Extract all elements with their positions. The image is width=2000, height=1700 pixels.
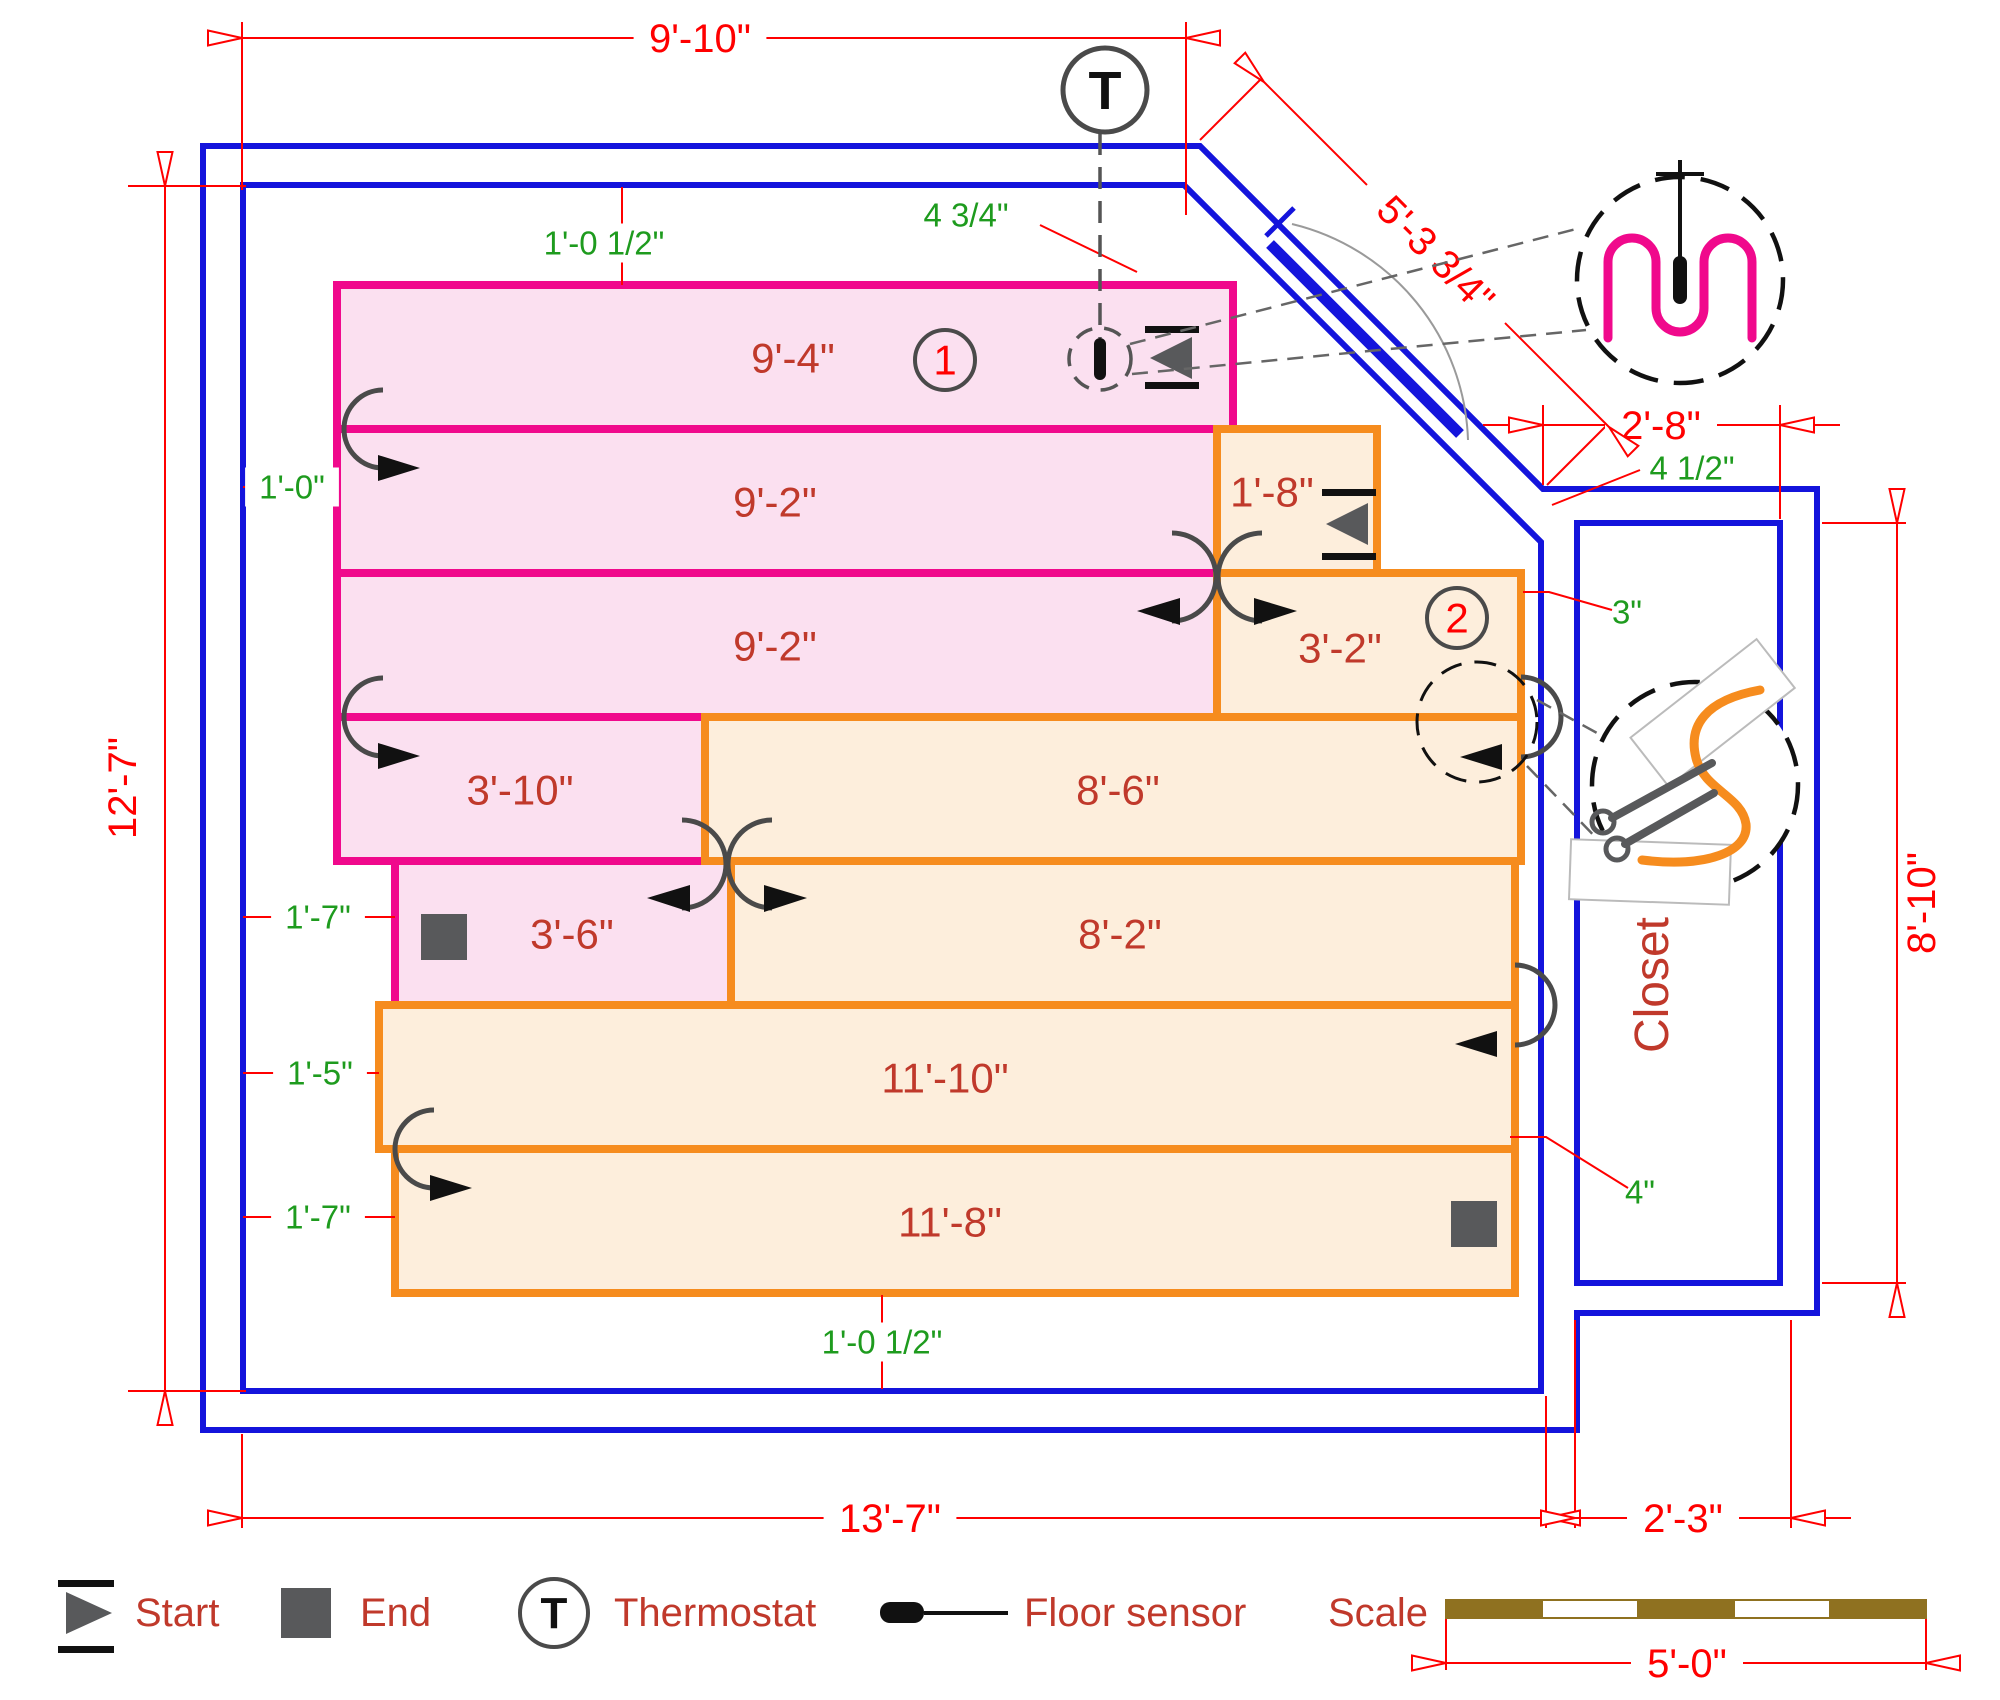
- scale-label: Scale: [1328, 1591, 1428, 1635]
- scale-bar-segment: [1830, 1600, 1926, 1618]
- circuit-badge-number: 2: [1445, 595, 1468, 642]
- plan-canvas: 9'-4"9'-2"9'-2"3'-10"3'-6"1'-8"3'-2"8'-6…: [0, 0, 2000, 1700]
- dimension-arrowhead: [1890, 489, 1905, 523]
- dimension-arrowhead: [1890, 1283, 1905, 1317]
- dimension-arrowhead: [1412, 1656, 1446, 1671]
- dimension-arrowhead: [1926, 1656, 1960, 1671]
- annotation-label: 3": [1612, 594, 1642, 631]
- dimension-label: 13'-7": [839, 1497, 941, 1541]
- scale-bar-segment: [1446, 1600, 1542, 1618]
- mat-length-label: 3'-10": [467, 767, 574, 814]
- dimension-arrowhead: [1791, 1511, 1825, 1526]
- annotation-label: 1'-7": [285, 1199, 351, 1236]
- legend-label-start: Start: [135, 1591, 219, 1635]
- start-icon: [58, 1580, 114, 1653]
- annotation-label: 1'-0": [259, 469, 325, 506]
- annotation-leader: [1523, 592, 1612, 610]
- annotation-label: 1'-0 1/2": [544, 225, 665, 262]
- extension-line: [1547, 425, 1607, 485]
- floor-sensor-probe: [1094, 338, 1106, 380]
- heating-mats: 9'-4"9'-2"9'-2"3'-10"3'-6"1'-8"3'-2"8'-6…: [337, 285, 1521, 1293]
- annotation-label: 4": [1625, 1174, 1655, 1211]
- dimension-label: 8'-10": [1900, 852, 1944, 954]
- scale-bar-segment: [1734, 1600, 1830, 1618]
- mat-piece: [1569, 839, 1731, 905]
- end-marker-circuit2: [1451, 1201, 1497, 1247]
- start-marker-bar: [1322, 553, 1376, 560]
- floor-heating-plan: 9'-4"9'-2"9'-2"3'-10"3'-6"1'-8"3'-2"8'-6…: [0, 0, 2000, 1700]
- svg-text:T: T: [541, 1589, 568, 1638]
- end-marker-circuit1: [421, 914, 467, 960]
- scale-bar-segment: [1542, 1600, 1638, 1618]
- dimension-arrowhead: [1509, 418, 1543, 433]
- dimension-label: 9'-10": [649, 17, 751, 61]
- legend-label-sensor: Floor sensor: [1024, 1591, 1246, 1635]
- dimension-arrowhead: [1235, 53, 1264, 82]
- mat-length-label: 8'-6": [1076, 767, 1160, 814]
- thermostat-symbol-letter: T: [1089, 61, 1122, 121]
- legend-label-thermostat: Thermostat: [614, 1591, 816, 1635]
- dimension-label: 12'-7": [101, 737, 145, 839]
- annotation-label: 4 1/2": [1649, 450, 1734, 487]
- start-marker-bar: [1322, 489, 1376, 496]
- end-icon: [281, 1588, 331, 1638]
- callout-leader: [1537, 700, 1597, 733]
- mat-length-label: 1'-8": [1230, 469, 1314, 516]
- dimension-arrowhead: [1780, 418, 1814, 433]
- scale-bar: [1446, 1600, 1926, 1618]
- floor-sensor-icon: [880, 1602, 1008, 1623]
- dimension-label: 5'-3 3/4": [1368, 187, 1503, 322]
- mat-length-label: 11'-10": [881, 1055, 1008, 1102]
- start-marker-bar: [1145, 382, 1199, 389]
- annotation-leader: [1040, 225, 1137, 272]
- annotation-label: 1'-5": [287, 1055, 353, 1092]
- mat-length-label: 3'-2": [1298, 625, 1382, 672]
- annotation-label: 1'-7": [285, 899, 351, 936]
- mat-length-label: 9'-2": [733, 623, 817, 670]
- scale-bar-segment: [1638, 1600, 1734, 1618]
- dimension-arrowhead: [158, 152, 173, 186]
- sensor-detail-probe: [1673, 256, 1687, 304]
- mat-length-label: 11'-8": [898, 1199, 1002, 1246]
- dimension-arrowhead: [208, 1511, 242, 1526]
- dimension-label: 2'-3": [1643, 1497, 1723, 1541]
- legend-label-end: End: [360, 1591, 431, 1635]
- dimension-label: 5'-0": [1647, 1642, 1727, 1686]
- dimension-arrowhead: [1186, 31, 1220, 46]
- dimension-arrowhead: [158, 1391, 173, 1425]
- annotation-leader: [1510, 1137, 1628, 1188]
- closet-label: Closet: [1626, 917, 1679, 1053]
- circuit-badge-number: 1: [933, 337, 956, 384]
- mat-length-label: 9'-2": [733, 479, 817, 526]
- annotation-label: 4 3/4": [923, 197, 1008, 234]
- annotation-label: 1'-0 1/2": [822, 1324, 943, 1361]
- dimension-arrowhead: [208, 31, 242, 46]
- mat-length-label: 3'-6": [530, 911, 614, 958]
- mat-length-label: 9'-4": [751, 335, 835, 382]
- mat-length-label: 8'-2": [1078, 911, 1162, 958]
- extension-line: [1200, 80, 1260, 140]
- turn-arc: [1515, 965, 1555, 1045]
- thermostat-icon: T: [520, 1579, 588, 1647]
